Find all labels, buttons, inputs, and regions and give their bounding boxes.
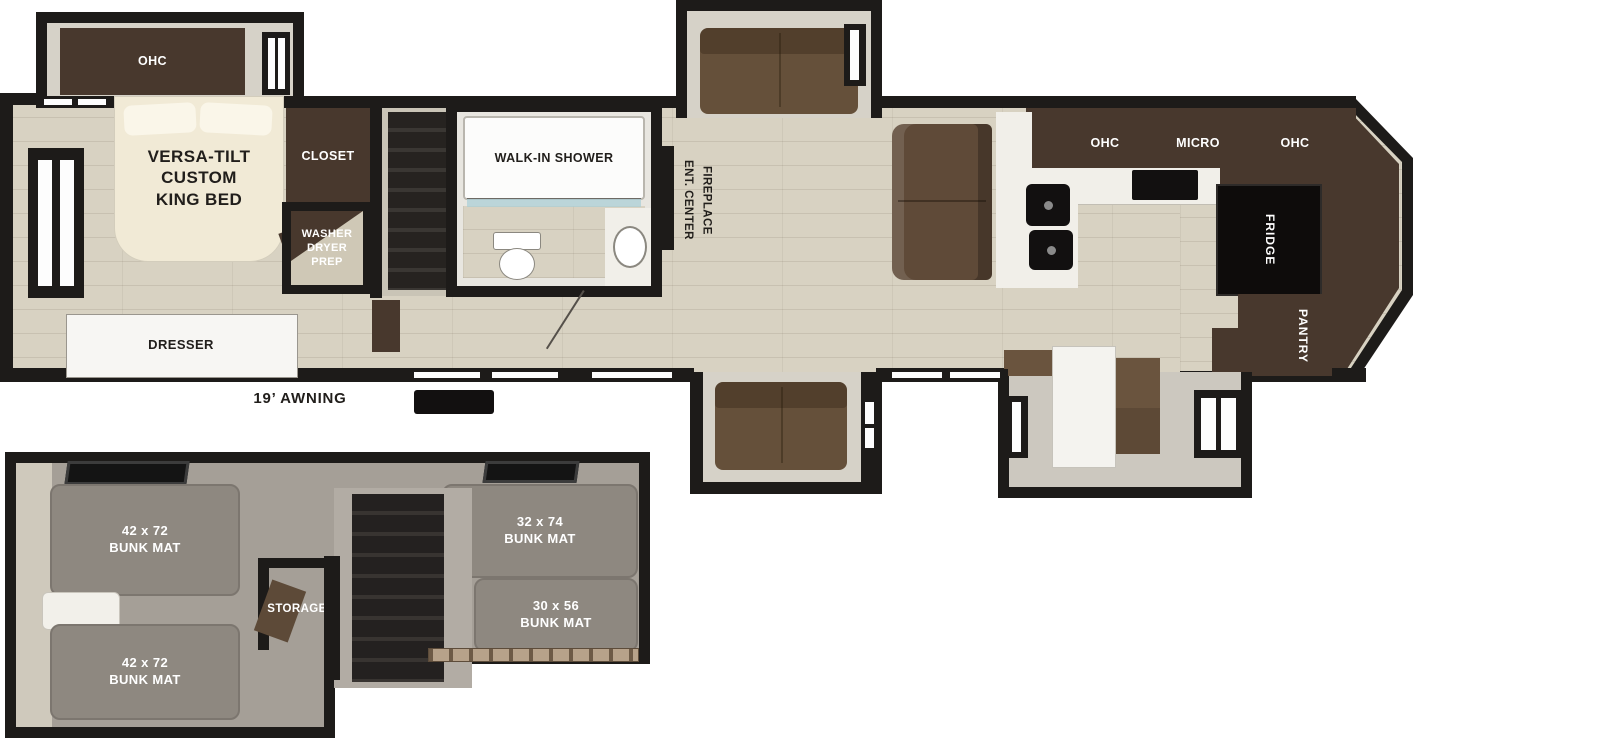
dinette-window-left	[1006, 396, 1028, 458]
stairs-to-bedroom	[382, 108, 454, 296]
dinette-window-right	[1194, 390, 1244, 458]
hall-cabinet	[372, 300, 400, 352]
kitchen-ohc-right-label: OHC	[1255, 134, 1335, 152]
ent-center-label: ENT. CENTER FIREPLACE	[676, 148, 718, 252]
fridge-label: FRIDGE	[1216, 184, 1322, 296]
rv-floorplan: OHC VERSA-TILT CUSTOM KING BED CLOSET WA…	[0, 0, 1600, 748]
kitchen-ohc-left-label: OHC	[1065, 134, 1145, 152]
kitchen-sink-basin	[1026, 184, 1070, 226]
bedroom-top-wall-seg2	[282, 96, 308, 108]
king-bed-label: VERSA-TILT CUSTOM KING BED	[119, 140, 279, 216]
washer-dryer-prep: WASHER DRYER PREP	[282, 202, 372, 294]
dinette-table	[1052, 346, 1116, 468]
living-top-slideout	[676, 0, 882, 118]
bunk-railing	[428, 648, 639, 662]
window-bottom-2	[584, 369, 680, 381]
shower-glass	[467, 198, 641, 207]
bunk-mat-top-left-label: 42 x 72 BUNK MAT	[50, 484, 240, 596]
king-bed: VERSA-TILT CUSTOM KING BED	[114, 96, 284, 262]
ent-center-fireplace	[658, 146, 674, 250]
kitchen-sink-basin2	[1029, 230, 1073, 270]
loft-stair-rail-wall	[324, 556, 340, 680]
window-bottom-3	[884, 369, 1008, 381]
bed-pillow	[199, 102, 272, 136]
theater-seat-split	[898, 200, 986, 202]
front-wall	[0, 95, 13, 382]
sofa-bottom-slide	[715, 382, 847, 470]
sink-drain	[1047, 246, 1056, 255]
top-wall-right	[876, 96, 1356, 108]
kitchen-micro-label: MICRO	[1158, 134, 1238, 152]
walk-in-shower-label: WALK-IN SHOWER	[463, 116, 645, 200]
bedroom-slideout-window	[262, 32, 290, 95]
dinette-bench-left	[1004, 350, 1052, 376]
bunk-mat-bottom-right-label: 30 x 56 BUNK MAT	[474, 578, 638, 652]
bed-pillow	[123, 102, 196, 136]
theater-seating	[892, 124, 992, 280]
toilet-bowl	[499, 248, 535, 280]
cooktop	[1132, 170, 1198, 200]
sink-drain	[1044, 201, 1053, 210]
bedroom-window-left	[28, 148, 84, 298]
entry-step	[414, 390, 494, 414]
awning-label: 19’ AWNING	[210, 388, 390, 410]
washer-dryer-label: WASHER DRYER PREP	[291, 213, 363, 283]
bedroom-bath-wall	[370, 96, 382, 298]
window-bottom-1	[406, 369, 568, 381]
closet-label: CLOSET	[286, 108, 370, 204]
roof-vent-right	[482, 461, 579, 483]
pantry-label: PANTRY	[1282, 298, 1322, 374]
living-bottom-slideout	[690, 372, 882, 494]
bunk-mat-bottom-left-label: 42 x 72 BUNK MAT	[50, 624, 240, 720]
bath-sink	[613, 226, 647, 268]
sofa-top-slide	[700, 28, 858, 114]
stairs-steps	[388, 112, 448, 290]
dinette-bench-right	[1114, 358, 1160, 454]
dresser-label: DRESSER	[66, 314, 296, 376]
bedroom-top-wall-seg	[36, 96, 118, 108]
bedroom-ohc-label: OHC	[60, 28, 245, 95]
living-top-slideout-window	[844, 24, 866, 86]
roof-vent-left	[64, 461, 189, 485]
bathroom: WALK-IN SHOWER	[446, 101, 662, 297]
bedroom-slideout: OHC	[36, 12, 304, 106]
cabinet-by-dinette	[1212, 328, 1270, 372]
